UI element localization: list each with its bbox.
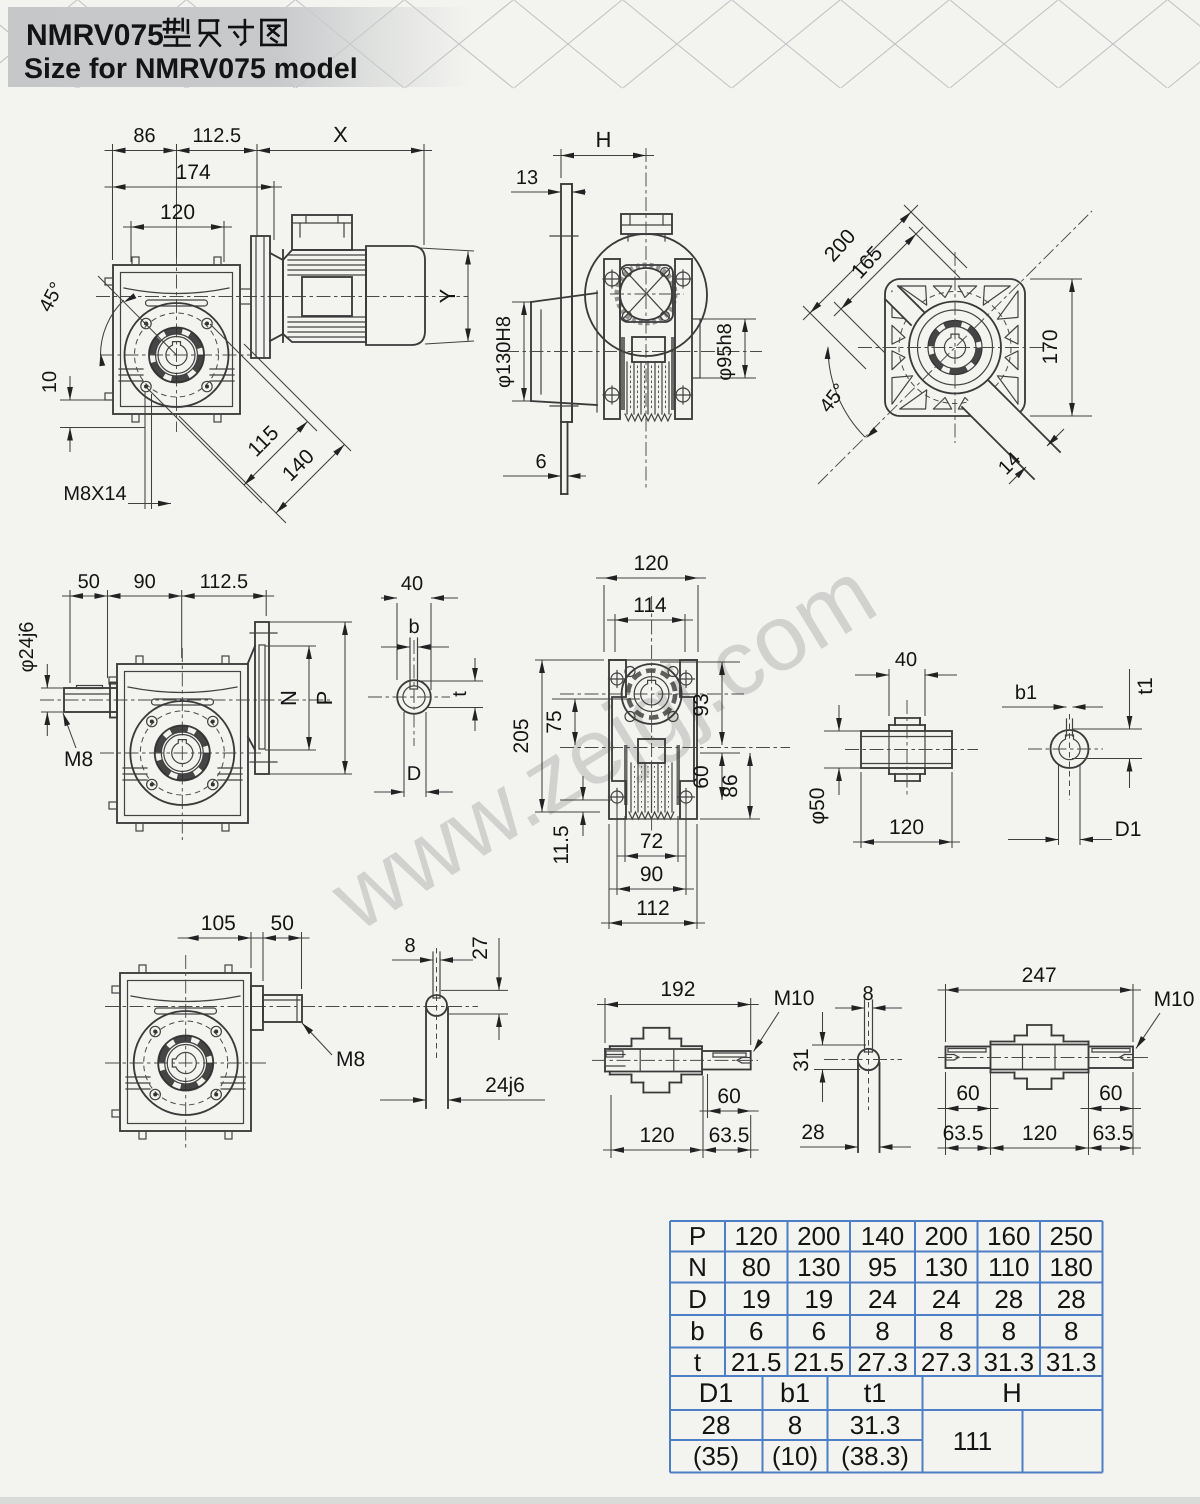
svg-text:130: 130 <box>925 1252 968 1282</box>
svg-text:86: 86 <box>719 774 742 797</box>
svg-text:40: 40 <box>401 573 423 595</box>
svg-text:φ95h8: φ95h8 <box>714 323 736 380</box>
svg-text:60: 60 <box>1099 1082 1122 1105</box>
svg-text:60: 60 <box>690 765 713 788</box>
svg-text:120: 120 <box>1022 1122 1057 1145</box>
svg-text:63.5: 63.5 <box>709 1124 750 1147</box>
svg-text:D1: D1 <box>699 1378 734 1408</box>
svg-text:(38.3): (38.3) <box>841 1441 909 1471</box>
svg-text:N: N <box>688 1252 707 1282</box>
svg-text:45°: 45° <box>815 380 851 417</box>
svg-text:8: 8 <box>1002 1316 1016 1346</box>
svg-text:250: 250 <box>1050 1221 1093 1251</box>
svg-text:140: 140 <box>278 445 319 486</box>
svg-text:M10: M10 <box>1154 988 1195 1011</box>
svg-text:t: t <box>449 691 471 697</box>
svg-text:6: 6 <box>749 1316 763 1346</box>
svg-text:28: 28 <box>801 1121 824 1144</box>
svg-text:t: t <box>694 1347 702 1377</box>
svg-text:27.3: 27.3 <box>857 1347 908 1377</box>
svg-text:X: X <box>333 122 348 147</box>
svg-text:114: 114 <box>633 594 667 617</box>
svg-text:75: 75 <box>543 710 566 733</box>
svg-text:8: 8 <box>1064 1316 1078 1346</box>
svg-text:174: 174 <box>176 161 211 184</box>
svg-text:180: 180 <box>1050 1252 1093 1282</box>
svg-text:192: 192 <box>660 978 695 1001</box>
svg-text:8: 8 <box>875 1316 889 1346</box>
svg-text:b1: b1 <box>1015 682 1037 704</box>
svg-text:D: D <box>688 1284 707 1314</box>
svg-text:63.5: 63.5 <box>943 1122 984 1145</box>
svg-text:b: b <box>690 1316 704 1346</box>
svg-text:www.zejgj.com: www.zejgj.com <box>313 540 893 951</box>
svg-text:8: 8 <box>404 935 415 957</box>
svg-text:8: 8 <box>939 1316 953 1346</box>
svg-text:27.3: 27.3 <box>921 1347 972 1377</box>
svg-text:50: 50 <box>78 571 100 593</box>
svg-text:111: 111 <box>953 1426 993 1456</box>
svg-text:H: H <box>1002 1378 1022 1408</box>
svg-text:120: 120 <box>160 201 195 224</box>
svg-text:60: 60 <box>717 1085 740 1108</box>
svg-text:86: 86 <box>133 125 155 147</box>
svg-text:90: 90 <box>640 863 663 886</box>
svg-text:10: 10 <box>39 371 61 393</box>
svg-text:112.5: 112.5 <box>200 571 249 593</box>
svg-text:t1: t1 <box>1134 677 1157 695</box>
svg-text:140: 140 <box>861 1221 904 1251</box>
svg-text:8: 8 <box>788 1410 802 1440</box>
svg-text:13: 13 <box>516 167 538 189</box>
svg-text:31.3: 31.3 <box>983 1347 1034 1377</box>
svg-text:t1: t1 <box>864 1378 887 1408</box>
svg-text:φ50: φ50 <box>806 788 829 825</box>
svg-text:60: 60 <box>956 1082 979 1105</box>
svg-text:11.5: 11.5 <box>550 825 573 864</box>
svg-text:P: P <box>689 1221 706 1251</box>
svg-text:Size for NMRV075 model: Size for NMRV075 model <box>24 53 358 85</box>
svg-text:D: D <box>407 763 421 785</box>
svg-text:205: 205 <box>510 718 533 753</box>
svg-text:19: 19 <box>804 1284 833 1314</box>
svg-text:24: 24 <box>868 1284 897 1314</box>
svg-text:M10: M10 <box>774 987 815 1010</box>
svg-text:160: 160 <box>987 1221 1030 1251</box>
svg-text:(35): (35) <box>693 1441 739 1471</box>
svg-text:φ130H8: φ130H8 <box>493 316 515 388</box>
svg-text:40: 40 <box>895 649 917 671</box>
svg-text:120: 120 <box>735 1221 778 1251</box>
svg-text:120: 120 <box>889 816 924 839</box>
svg-text:120: 120 <box>639 1124 674 1147</box>
svg-text:112: 112 <box>636 897 669 920</box>
svg-text:200: 200 <box>797 1221 840 1251</box>
svg-text:8: 8 <box>862 983 873 1005</box>
svg-text:105: 105 <box>201 912 236 935</box>
svg-text:19: 19 <box>742 1284 771 1314</box>
svg-text:Y: Y <box>435 288 460 303</box>
svg-text:(10): (10) <box>772 1441 818 1471</box>
svg-text:N: N <box>276 690 301 706</box>
svg-text:50: 50 <box>271 912 294 935</box>
svg-text:110: 110 <box>988 1252 1029 1282</box>
svg-text:200: 200 <box>925 1221 968 1251</box>
svg-text:24j6: 24j6 <box>485 1074 525 1097</box>
svg-text:M8X14: M8X14 <box>63 483 126 505</box>
svg-text:31: 31 <box>790 1048 813 1071</box>
svg-text:28: 28 <box>994 1284 1023 1314</box>
svg-text:170: 170 <box>1039 329 1062 364</box>
svg-text:21.5: 21.5 <box>731 1347 782 1377</box>
svg-text:H: H <box>596 127 612 152</box>
svg-text:120: 120 <box>633 552 668 575</box>
svg-text:95: 95 <box>868 1252 897 1282</box>
svg-text:247: 247 <box>1022 964 1057 987</box>
svg-text:27: 27 <box>469 936 492 959</box>
svg-text:b1: b1 <box>780 1378 810 1408</box>
svg-text:93: 93 <box>690 693 713 716</box>
svg-text:b: b <box>408 616 419 638</box>
svg-text:90: 90 <box>133 571 155 593</box>
svg-text:63.5: 63.5 <box>1093 1122 1134 1145</box>
svg-text:45°: 45° <box>35 279 69 316</box>
svg-text:6: 6 <box>535 451 546 473</box>
svg-text:31.3: 31.3 <box>1046 1347 1097 1377</box>
svg-text:M8: M8 <box>64 748 93 771</box>
svg-text:24: 24 <box>932 1284 961 1314</box>
svg-text:112.5: 112.5 <box>193 125 242 147</box>
svg-text:72: 72 <box>640 830 663 853</box>
svg-text:21.5: 21.5 <box>793 1347 844 1377</box>
svg-text:31.3: 31.3 <box>850 1410 901 1440</box>
svg-text:φ24j6: φ24j6 <box>16 622 38 673</box>
svg-text:D1: D1 <box>1115 818 1142 841</box>
svg-text:80: 80 <box>742 1252 771 1282</box>
svg-text:28: 28 <box>1057 1284 1086 1314</box>
svg-text:28: 28 <box>702 1410 731 1440</box>
svg-text:115: 115 <box>243 421 283 461</box>
svg-text:M8: M8 <box>336 1048 365 1071</box>
svg-text:6: 6 <box>812 1316 826 1346</box>
svg-text:P: P <box>312 691 337 706</box>
svg-text:NMRV075: NMRV075 <box>26 19 164 52</box>
svg-text:130: 130 <box>797 1252 840 1282</box>
